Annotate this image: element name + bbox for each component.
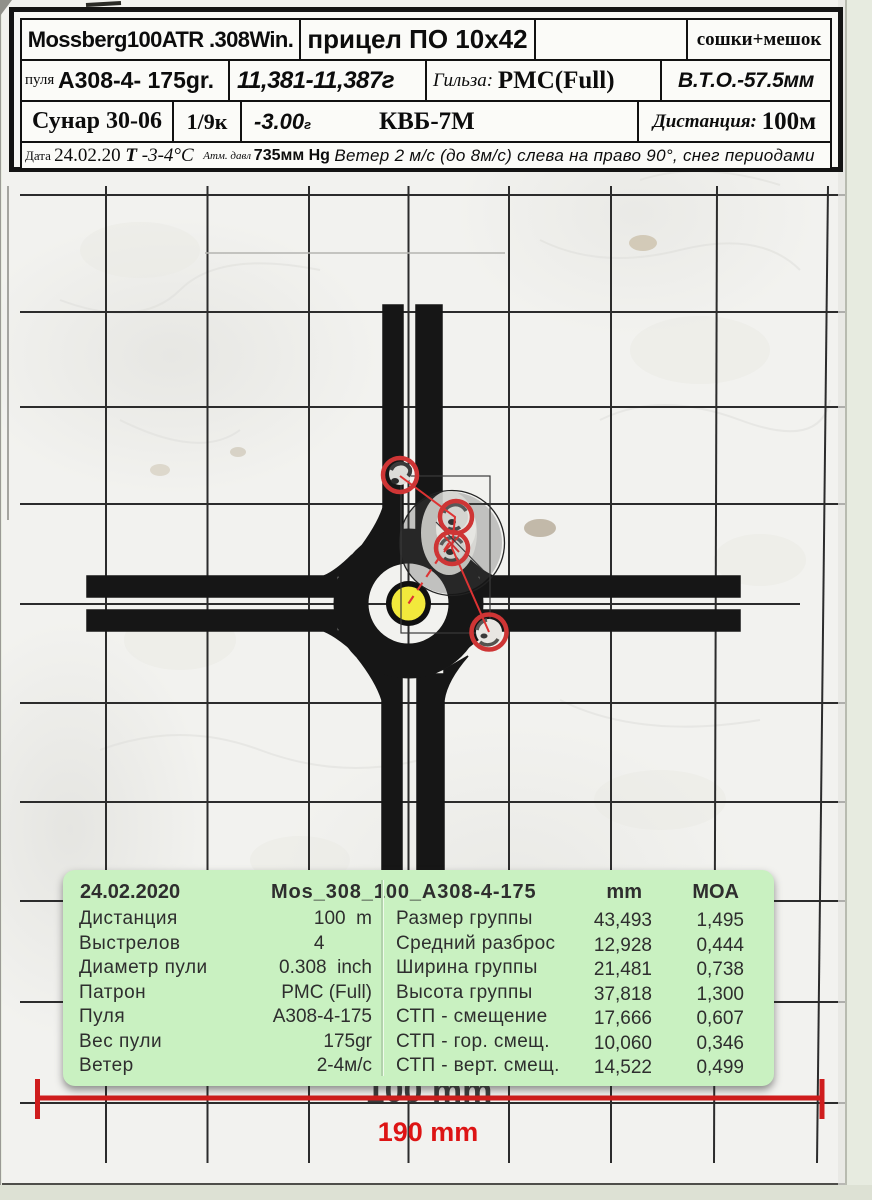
svg-text:190 mm: 190 mm <box>378 1117 479 1147</box>
